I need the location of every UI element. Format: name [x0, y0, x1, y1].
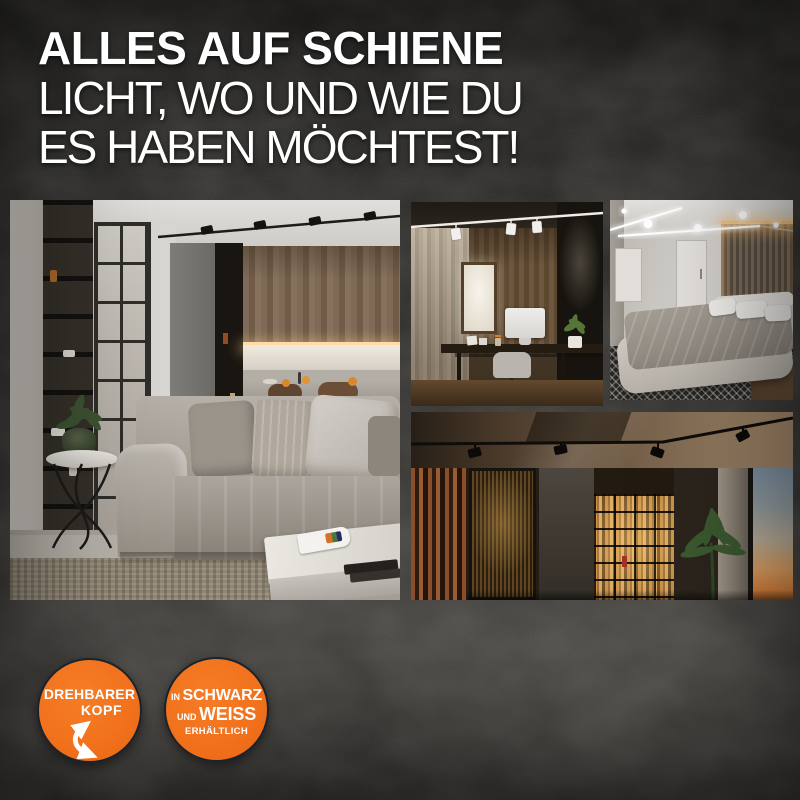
- floor-shadow: [467, 590, 793, 600]
- poster-canvas: ALLES AUF SCHIENE LICHT, WO UND WIE DU E…: [0, 0, 800, 800]
- orange-fruit: [302, 376, 310, 384]
- photo-hallway-sunset: [411, 412, 793, 600]
- pencil-cup: [495, 338, 501, 346]
- ceiling-track-light: [411, 412, 793, 472]
- door: [676, 240, 707, 310]
- sofa-pillow: [187, 400, 258, 478]
- sunset-window: [748, 468, 793, 600]
- pillow: [735, 300, 767, 320]
- badge-text-large: WEISS: [199, 704, 256, 724]
- ceiling-track-light: [411, 202, 603, 244]
- door-handle: [700, 269, 702, 279]
- backsplash: [243, 345, 400, 370]
- wood-cabinets: [243, 246, 400, 343]
- lit-bookshelf: [594, 494, 674, 600]
- magazine-print: [325, 531, 342, 544]
- badge-black-white-available: IN SCHWARZ UND WEISS ERHÄLTLICH: [164, 657, 269, 762]
- window: [461, 262, 497, 334]
- pillow: [765, 304, 792, 321]
- badge-text: DREHBARER: [39, 686, 140, 702]
- headline-line-3: ES HABEN MÖCHTEST!: [38, 123, 522, 172]
- papers: [479, 338, 487, 345]
- shelf-dishes: [63, 350, 75, 357]
- palm-plant: [673, 504, 751, 600]
- photo-home-office: [411, 202, 603, 406]
- badge-text: IN SCHWARZ: [166, 687, 267, 705]
- orange-fruit: [282, 379, 290, 387]
- side-table-wire-legs: [48, 462, 116, 550]
- papers: [467, 336, 478, 346]
- shelf-bottle: [50, 270, 57, 282]
- headline-line-1: ALLES AUF SCHIENE: [38, 22, 522, 74]
- reeded-glass-door: [469, 468, 536, 600]
- dark-cabinet: [539, 468, 594, 600]
- badge-rotatable-head: DREHBARER KOPF: [37, 658, 142, 763]
- photo-living-room: [10, 200, 400, 600]
- door: [615, 248, 642, 302]
- pencils: [495, 335, 501, 337]
- badge-text-small: UND: [177, 712, 197, 722]
- orange-fruit: [348, 377, 357, 386]
- ceiling-track-light: [10, 200, 400, 252]
- red-book: [622, 556, 627, 567]
- badge-text: ERHÄLTLICH: [166, 726, 267, 737]
- sofa-pillow: [368, 416, 400, 476]
- monitor-stand: [519, 338, 531, 345]
- headline-line-2: LICHT, WO UND WIE DU: [38, 74, 522, 123]
- floor: [411, 380, 603, 406]
- headline: ALLES AUF SCHIENE LICHT, WO UND WIE DU E…: [38, 22, 522, 172]
- badge-text: KOPF: [51, 702, 152, 718]
- badge-text: UND WEISS: [166, 704, 267, 725]
- badge-text-large: SCHWARZ: [183, 687, 262, 704]
- rotate-arrow-icon: [63, 719, 117, 761]
- badge-text-small: IN: [171, 692, 180, 702]
- desk-plant: [559, 314, 589, 354]
- desktop-monitor: [505, 308, 545, 338]
- office-chair: [493, 352, 531, 378]
- ceiling-track-light-glowing: [610, 200, 793, 242]
- faucet: [298, 372, 301, 384]
- photo-bedroom: [610, 200, 793, 400]
- wood-slat-wall: [411, 468, 467, 600]
- niche-bottle: [223, 333, 228, 344]
